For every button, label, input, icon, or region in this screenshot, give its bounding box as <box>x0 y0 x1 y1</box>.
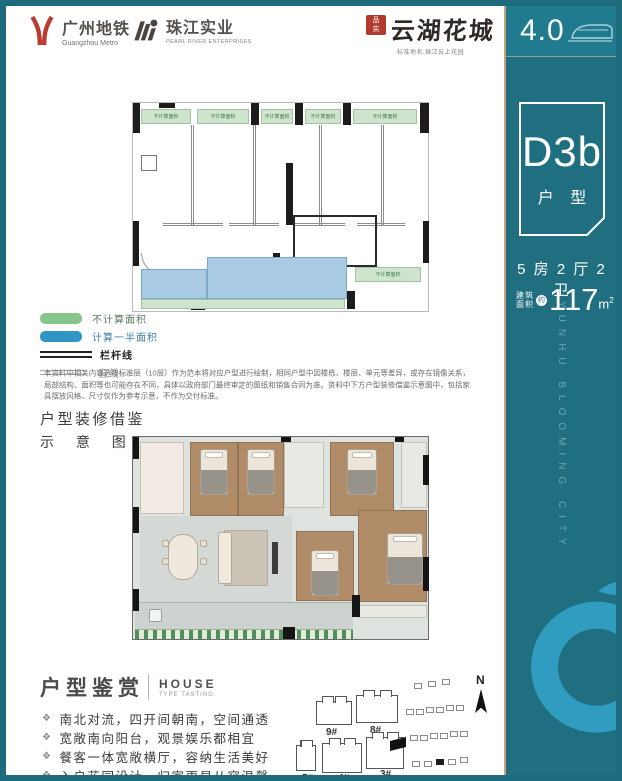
bathroom-1 <box>284 442 324 508</box>
render-note: 户型装修借鉴 示 意 图 <box>40 408 145 452</box>
site-plan: 9# 8# 5# 4# 3# <box>294 661 502 775</box>
pearl-river-icon <box>134 16 160 44</box>
disclaimer-text: 本资料中相关内容选取标准层（10层）作为范本将对应户型进行绘制，相同户型中因楼栋… <box>44 368 470 403</box>
approx-circle-icon: 约 <box>536 295 547 306</box>
building-label: 3# <box>380 769 391 775</box>
render-note-line1: 户型装修借鉴 <box>40 408 145 429</box>
bed <box>200 449 228 495</box>
diamond-bullet-icon: ❖ <box>42 732 52 743</box>
no-area-strip <box>141 299 345 309</box>
no-area-strip: 不计算面积 <box>197 109 249 124</box>
no-area-strip: 不计算面积 <box>355 267 421 282</box>
balcony <box>135 602 353 629</box>
tv-cabinet <box>272 542 278 574</box>
north-label: N <box>476 673 485 687</box>
pearl-name-cn: 珠江实业 <box>166 14 252 38</box>
feature-item: ❖ 入户花园设计，归家更显从容温馨 <box>42 766 292 775</box>
appreciation-header: 户型鉴赏 HOUSE TYPE TASTING <box>40 672 217 702</box>
building-label: 4# <box>338 773 349 775</box>
poster-page: 广州地铁 Guangzhou Metro 珠江实业 PEARL RIVER EN… <box>0 0 622 781</box>
pearl-river-logo: 珠江实业 PEARL RIVER ENTERPRISES <box>134 14 252 45</box>
bedroom-2 <box>238 442 284 516</box>
planter-strip <box>135 629 353 639</box>
metro-name-cn: 广州地铁 <box>62 15 130 39</box>
unit-code: D3b <box>519 128 605 176</box>
guangzhou-metro-logo: 广州地铁 Guangzhou Metro <box>28 14 130 48</box>
living-dining-room <box>140 516 292 602</box>
highlighted-building-icon <box>436 759 444 765</box>
building-5 <box>296 745 316 771</box>
bed <box>247 449 275 495</box>
no-area-strip: 不计算面积 <box>353 109 417 124</box>
content-area: 广州地铁 Guangzhou Metro 珠江实业 PEARL RIVER EN… <box>6 6 504 775</box>
header: 广州地铁 Guangzhou Metro 珠江实业 PEARL RIVER EN… <box>6 6 504 66</box>
feature-item: ❖ 宽敞南向阳台，观景娱乐都相宜 <box>42 728 292 747</box>
bed <box>347 449 377 495</box>
sofa <box>218 532 232 584</box>
shaft-box <box>141 155 157 171</box>
legend-green-swatch <box>40 313 82 324</box>
feature-list: ❖ 南北对流，四开间朝南，空间通透 ❖ 宽敞南向阳台，观景娱乐都相宜 ❖ 餐客一… <box>42 709 292 775</box>
legend-blue-label: 计算一半面积 <box>92 329 158 344</box>
legend-row-blue: 计算一半面积 <box>40 327 240 345</box>
rear-strip <box>358 605 427 618</box>
area-unit: m2 <box>598 296 613 311</box>
brand-name: 云湖花城 <box>390 11 496 46</box>
diamond-bullet-icon: ❖ <box>42 770 52 775</box>
unit-type-box: D3b 户 型 <box>519 102 605 236</box>
legend-rail-label: 栏杆线 <box>100 347 133 362</box>
legend-blue-swatch <box>40 331 82 342</box>
diamond-bullet-icon: ❖ <box>42 751 52 762</box>
sidebar: 4.0 D3b 户 型 5 房 2 厅 2 卫 建筑 面积 约 117 m2 Y… <box>504 6 616 775</box>
brand-seal-icon: 品 实 <box>366 15 386 35</box>
floor-plan-technical: 不计算面积 不计算面积 不计算面积 不计算面积 不计算面积 不计算面积 <box>132 102 429 312</box>
unit-code-label: 户 型 <box>519 184 605 208</box>
brand-logo: 品 实 云湖花城 标准地名:珠江云上花园 <box>366 11 495 56</box>
feature-item: ❖ 餐客一体宽敞横厅，容纳生活美好 <box>42 747 292 766</box>
legend-row-green: 不计算面积 <box>40 309 240 327</box>
render-note-line2: 示 意 图 <box>40 432 135 452</box>
master-bedroom <box>358 510 427 602</box>
bedroom-1 <box>190 442 238 516</box>
floor-plan-furnished <box>132 436 429 640</box>
appreciation-title: 户型鉴赏 <box>40 672 144 702</box>
legend-row-rail: 栏杆线 <box>40 345 240 363</box>
building-label: 9# <box>326 727 337 738</box>
appreciation-title-en-sub: TYPE TASTING <box>159 692 217 698</box>
legend-rail-line <box>40 351 92 358</box>
washing-machine <box>149 609 162 622</box>
no-area-strip: 不计算面积 <box>261 109 293 124</box>
dining-table <box>168 534 198 580</box>
metro-name-en: Guangzhou Metro <box>62 40 130 47</box>
bedroom-3 <box>330 442 394 516</box>
pearl-name-en: PEARL RIVER ENTERPRISES <box>166 39 252 45</box>
version-number: 4.0 <box>520 14 565 48</box>
appreciation-title-en: HOUSE <box>159 677 217 691</box>
north-arrow-icon <box>475 689 487 713</box>
title-divider <box>148 674 149 700</box>
version-badge: 4.0 <box>506 6 616 57</box>
train-icon <box>568 16 614 46</box>
kitchen <box>140 442 184 514</box>
area-label-1: 建筑 <box>516 291 534 300</box>
bed <box>387 533 423 585</box>
feature-item: ❖ 南北对流，四开间朝南，空间通透 <box>42 709 292 728</box>
building-label: 5# <box>302 773 313 775</box>
brand-swirl-icon <box>512 561 616 771</box>
half-area-balcony <box>207 257 347 299</box>
brand-subtitle: 标准地名:珠江云上花园 <box>397 47 495 56</box>
diamond-bullet-icon: ❖ <box>42 713 52 724</box>
bedroom-4 <box>296 531 354 601</box>
legend-green-label: 不计算面积 <box>92 311 147 326</box>
no-area-strip: 不计算面积 <box>141 109 191 124</box>
building-4 <box>322 743 362 773</box>
no-area-strip: 不计算面积 <box>305 109 341 124</box>
building-8 <box>356 695 398 723</box>
metro-y-icon <box>28 14 56 48</box>
building-9 <box>316 701 352 725</box>
area-label-2: 面积 <box>516 300 534 309</box>
bed <box>311 550 339 596</box>
half-area-balcony <box>141 269 207 299</box>
